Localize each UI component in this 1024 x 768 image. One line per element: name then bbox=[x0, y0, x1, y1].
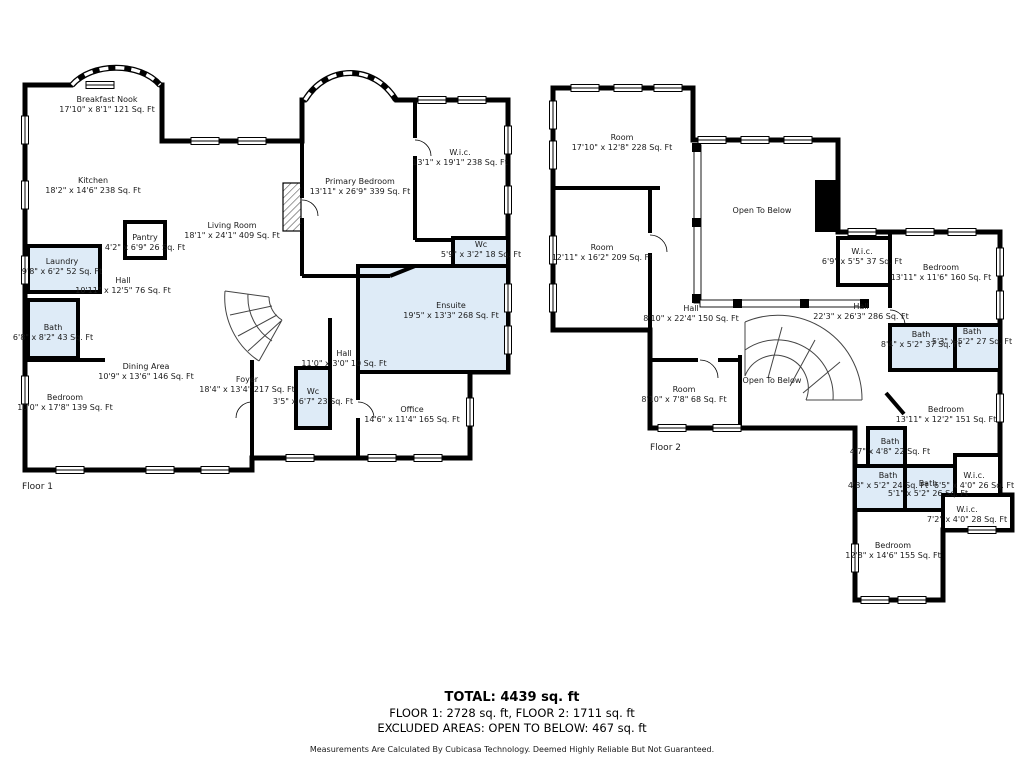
floor1-room-hall-small-dims: 11'0" x 3'0" 10 Sq. Ft bbox=[301, 359, 386, 368]
floor1-room-hall-label: Hall bbox=[115, 276, 130, 285]
floor2-room-small-label: Room bbox=[673, 385, 696, 394]
floor1-room-laundry-label: Laundry bbox=[46, 257, 79, 266]
floor1-plan: Breakfast Nook 17'10" x 8'1" 121 Sq. Ft … bbox=[13, 68, 521, 492]
floor-areas-text: FLOOR 1: 2728 sq. ft, FLOOR 2: 1711 sq. … bbox=[0, 706, 1024, 720]
floor2-hall-corridor-label: Hall bbox=[683, 304, 698, 313]
floor1-room-breakfast-nook-label: Breakfast Nook bbox=[76, 95, 137, 104]
floor2-room-small-dims: 8'10" x 7'8" 68 Sq. Ft bbox=[641, 395, 726, 404]
chimney bbox=[815, 180, 839, 232]
floor1-room-office-dims: 14'6" x 11'4" 165 Sq. Ft bbox=[364, 415, 459, 424]
floor1-room-dining-area-dims: 10'9" x 13'6" 146 Sq. Ft bbox=[98, 372, 193, 381]
floor1-room-laundry-dims: 9'8" x 6'2" 52 Sq. Ft bbox=[22, 267, 102, 276]
fireplace bbox=[283, 183, 301, 231]
floor1-room-breakfast-nook-dims: 17'10" x 8'1" 121 Sq. Ft bbox=[59, 105, 154, 114]
floor2-hall-corridor-dims: 8'10" x 22'4" 150 Sq. Ft bbox=[643, 314, 738, 323]
floor2-hall-main-label: Hall bbox=[853, 302, 868, 311]
floor1-room-wic-dims: 13'1" x 19'1" 238 Sq. Ft bbox=[412, 158, 507, 167]
floor1-room-bath-label: Bath bbox=[44, 323, 63, 332]
floor2-bath-47-dims: 4'7" x 4'8" 22 Sq. Ft bbox=[850, 447, 930, 456]
floor2-bedroom-ne-dims: 13'11" x 11'6" 160 Sq. Ft bbox=[891, 273, 992, 282]
floor1-room-kitchen-label: Kitchen bbox=[78, 176, 108, 185]
floor2-room-left-label: Room bbox=[591, 243, 614, 252]
total-area-text: TOTAL: 4439 sq. ft bbox=[0, 690, 1024, 705]
floor1-room-primary-bedroom-dims: 13'11" x 26'9" 339 Sq. Ft bbox=[310, 187, 411, 196]
floor2-bath-53-label: Bath bbox=[963, 327, 982, 336]
floor2-wic-65-dims: 6'5" x 4'0" 26 Sq. Ft bbox=[934, 481, 1014, 490]
floor1-room-hall-dims: 10'11" x 12'5" 76 Sq. Ft bbox=[75, 286, 170, 295]
floor1-room-bedroom-label: Bedroom bbox=[47, 393, 83, 402]
floor1-title: Floor 1 bbox=[22, 482, 53, 492]
disclaimer-text: Measurements Are Calculated By Cubicasa … bbox=[0, 745, 1024, 754]
floor2-bedroom-s-dims: 12'8" x 14'6" 155 Sq. Ft bbox=[845, 551, 940, 560]
floor2-open-to-below-1-label: Open To Below bbox=[733, 206, 792, 215]
excluded-areas-text: EXCLUDED AREAS: OPEN TO BELOW: 467 sq. f… bbox=[0, 721, 1024, 735]
floor1-room-dining-area-label: Dining Area bbox=[123, 362, 170, 371]
floor2-room-top-label: Room bbox=[611, 133, 634, 142]
floor2-bath-48-label: Bath bbox=[879, 471, 898, 480]
floor1-room-wic-label: W.i.c. bbox=[449, 148, 470, 157]
floor1-room-living-room-dims: 18'1" x 24'1" 409 Sq. Ft bbox=[184, 231, 279, 240]
floor1-room-bedroom-dims: 10'0" x 17'8" 139 Sq. Ft bbox=[17, 403, 112, 412]
floor2-title: Floor 2 bbox=[650, 443, 681, 453]
floor2-bedroom-e-label: Bedroom bbox=[928, 405, 964, 414]
floor1-room-pantry-dims: 4'2" x 6'9" 26 Sq. Ft bbox=[105, 243, 185, 252]
floor2-plan: Room 17'10" x 12'8" 228 Sq. Ft Open To B… bbox=[550, 85, 1015, 604]
floor2-bedroom-e-dims: 13'11" x 12'2" 151 Sq. Ft bbox=[896, 415, 997, 424]
floor1-room-living-room-label: Living Room bbox=[207, 221, 256, 230]
floor1-room-kitchen-dims: 18'2" x 14'6" 238 Sq. Ft bbox=[45, 186, 140, 195]
floor-plan-canvas: Breakfast Nook 17'10" x 8'1" 121 Sq. Ft … bbox=[0, 0, 1024, 680]
floor1-room-primary-bedroom-label: Primary Bedroom bbox=[325, 177, 395, 186]
floor2-room-top-dims: 17'10" x 12'8" 228 Sq. Ft bbox=[572, 143, 673, 152]
floor1-room-wc-top-dims: 5'9" x 3'2" 18 Sq. Ft bbox=[441, 250, 521, 259]
summary-footer: TOTAL: 4439 sq. ft FLOOR 1: 2728 sq. ft,… bbox=[0, 690, 1024, 754]
floor2-bath-84-label: Bath bbox=[912, 330, 931, 339]
floor1-room-hall-small-label: Hall bbox=[336, 349, 351, 358]
floor1-room-foyer-dims: 18'4" x 13'4" 217 Sq. Ft bbox=[199, 385, 294, 394]
floor2-wic-72-label: W.i.c. bbox=[956, 505, 977, 514]
floor2-wic-45-label: W.i.c. bbox=[851, 247, 872, 256]
floor1-room-office-label: Office bbox=[400, 405, 423, 414]
floor2-bedroom-ne-label: Bedroom bbox=[923, 263, 959, 272]
floor1-room-wc-top-label: Wc bbox=[475, 240, 487, 249]
floor2-wic-45-dims: 6'9" x 5'5" 37 Sq. Ft bbox=[822, 257, 902, 266]
floor2-hall-main-dims: 22'3" x 26'3" 286 Sq. Ft bbox=[813, 312, 908, 321]
floor1-room-bath-dims: 6'8" x 8'2" 43 Sq. Ft bbox=[13, 333, 93, 342]
floor2-bedroom-s-label: Bedroom bbox=[875, 541, 911, 550]
floor1-room-foyer-label: Foyer bbox=[236, 375, 259, 384]
floor2-wic-72-dims: 7'2" x 4'0" 28 Sq. Ft bbox=[927, 515, 1007, 524]
floor1-room-wc-foyer-label: Wc bbox=[307, 387, 319, 396]
floor2-bath-53-dims: 5'3" x 5'2" 27 Sq. Ft bbox=[932, 337, 1012, 346]
floor2-bath-51-dims: 5'1" x 5'2" 26 Sq. Ft bbox=[888, 489, 968, 498]
floor1-room-ensuite-dims: 19'5" x 13'3" 268 Sq. Ft bbox=[403, 311, 498, 320]
floor2-bath-47-label: Bath bbox=[881, 437, 900, 446]
floor1-room-ensuite-label: Ensuite bbox=[436, 301, 466, 310]
floor2-open-to-below-2-label: Open To Below bbox=[743, 376, 802, 385]
floor1-room-pantry-label: Pantry bbox=[132, 233, 158, 242]
floor2-wic-65-label: W.i.c. bbox=[963, 471, 984, 480]
floor1-room-wc-foyer-dims: 3'5" x 6'7" 23 Sq. Ft bbox=[273, 397, 353, 406]
floor2-room-left-dims: 12'11" x 16'2" 209 Sq. Ft bbox=[552, 253, 653, 262]
